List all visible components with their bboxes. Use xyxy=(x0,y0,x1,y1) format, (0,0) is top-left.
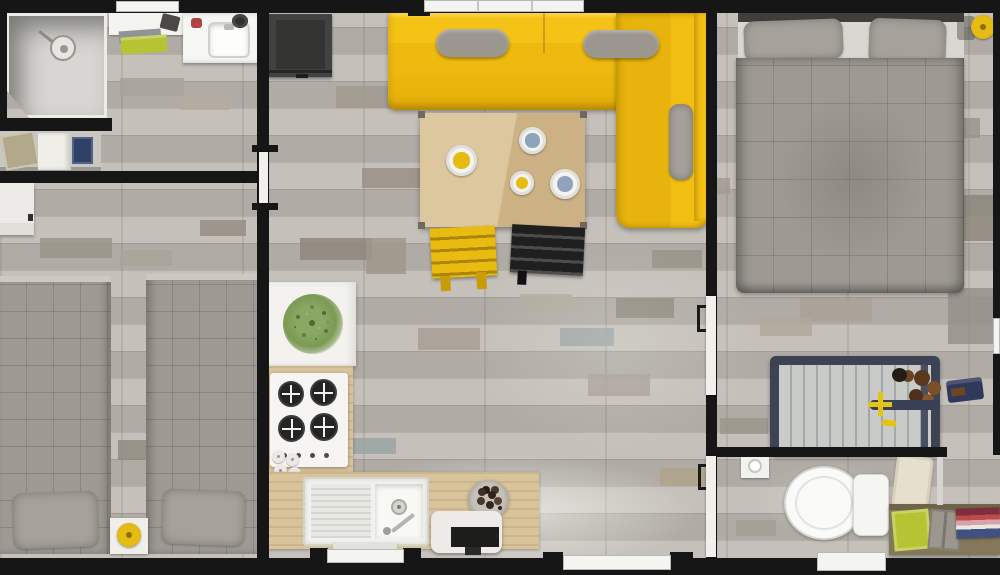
table-leg xyxy=(418,222,425,229)
yellow-mug xyxy=(510,171,534,195)
closet-divider xyxy=(937,457,943,505)
vanity-counter xyxy=(183,13,264,63)
white-towel xyxy=(38,133,71,170)
potted-plant xyxy=(283,294,343,354)
tall-cabinet-fridge xyxy=(268,14,332,77)
hob-knob xyxy=(310,453,315,458)
stacked-towels xyxy=(955,507,1000,539)
green-folded-towel xyxy=(891,508,931,551)
floor-plan xyxy=(0,0,1000,575)
bath-mat xyxy=(891,454,934,511)
shaker xyxy=(286,453,299,466)
khaki-towel xyxy=(0,130,40,170)
twin-bed-left-pillow xyxy=(12,491,99,550)
wardrobe-knob xyxy=(28,214,33,221)
door-jamb xyxy=(252,145,278,152)
chair-leg xyxy=(476,272,487,290)
coffee-machine-spout xyxy=(465,547,481,555)
sofa-cushion-left xyxy=(436,29,509,57)
floor-patch xyxy=(588,374,650,396)
twin-lamp xyxy=(117,523,141,547)
floor-patch xyxy=(350,438,396,454)
window-jamb xyxy=(670,552,693,570)
wall-left xyxy=(0,0,7,131)
floor-patch xyxy=(560,328,614,346)
floor-patch xyxy=(418,328,480,350)
red-soap-item xyxy=(191,18,202,28)
wall-right xyxy=(993,0,1000,455)
floor-patch xyxy=(720,418,768,434)
table-leg xyxy=(580,111,587,118)
toilet-bowl xyxy=(784,466,864,540)
shaker xyxy=(272,450,285,463)
fridge-seam xyxy=(268,70,332,73)
burner xyxy=(310,379,337,406)
double-bed xyxy=(738,13,964,293)
door-toilet-room xyxy=(706,456,716,557)
double-bed-pillow-left xyxy=(743,18,843,61)
chair-leg xyxy=(517,270,527,284)
berries xyxy=(478,488,486,496)
door-jamb xyxy=(252,203,278,210)
floor-patch xyxy=(652,250,702,268)
fridge-panel xyxy=(276,20,325,69)
floor-patch xyxy=(30,200,70,214)
dining-table xyxy=(420,113,585,227)
floor-patch xyxy=(948,288,996,344)
table-leg xyxy=(418,111,425,118)
blue-mug-2 xyxy=(550,169,580,199)
drain-center xyxy=(397,505,401,509)
floor-patch xyxy=(120,250,172,266)
chair-leg xyxy=(440,276,451,292)
shower-head-icon xyxy=(50,35,76,61)
navy-towel xyxy=(72,137,93,164)
wall-toilet-top xyxy=(706,447,947,457)
bedside-lamp xyxy=(971,15,995,39)
clothes-pile xyxy=(946,377,984,403)
toilet-tank xyxy=(853,474,889,536)
burner xyxy=(278,415,305,442)
wall-end-post xyxy=(148,171,162,183)
door-handle xyxy=(697,305,706,332)
sink-unit xyxy=(303,477,429,546)
sink-drain xyxy=(391,499,407,515)
floor-patch xyxy=(40,238,112,258)
window-jamb xyxy=(403,548,421,566)
floor-patch xyxy=(736,520,776,536)
towel-rack xyxy=(0,130,101,172)
window-kitchen-bottom xyxy=(327,549,404,563)
hob-knob xyxy=(324,453,329,458)
floor-patch xyxy=(616,298,674,318)
yellow-slat-chair xyxy=(430,225,498,278)
floor-patch xyxy=(180,96,230,110)
yellow-teapot xyxy=(446,145,477,176)
sofa-lumbar-pillow xyxy=(669,104,693,180)
bath-caddy xyxy=(892,362,938,402)
clothes-accent xyxy=(951,387,966,397)
drainboard xyxy=(311,484,371,538)
floor-patch xyxy=(760,318,812,336)
twin-lamp-center xyxy=(126,532,132,538)
door-left-bedroom xyxy=(259,152,268,203)
window-right-wall xyxy=(993,318,1000,354)
black-slat-chair xyxy=(510,224,585,276)
plant-leaves xyxy=(309,320,315,326)
window-living-bottom xyxy=(563,555,671,570)
coffee-machine-panel xyxy=(451,527,499,547)
shower-head-center xyxy=(60,45,68,53)
floor-patch xyxy=(300,238,372,260)
toilet-paper-holder xyxy=(741,454,769,478)
floor-patch xyxy=(200,220,246,236)
black-jar xyxy=(232,14,248,28)
comforter-shading xyxy=(778,93,928,263)
sofa-cushion-right xyxy=(583,30,659,58)
door-right-bedroom xyxy=(706,296,716,395)
caddy-dark-jar xyxy=(892,368,907,382)
lamp-center xyxy=(980,24,986,30)
door-bath-bottom xyxy=(817,552,886,571)
bag-strap xyxy=(941,512,947,548)
door-handle xyxy=(698,464,706,490)
handle-bar-h xyxy=(868,402,892,407)
paper-roll xyxy=(748,459,762,473)
window-living-top xyxy=(424,0,584,12)
burner xyxy=(310,413,338,441)
floor-patch xyxy=(366,238,406,274)
wall-bedroom-left-top xyxy=(0,171,265,183)
corner-shower xyxy=(6,13,107,118)
sofa-back-seam xyxy=(543,13,545,53)
window-jamb xyxy=(543,552,563,570)
window-jamb xyxy=(310,548,328,566)
wall-bath-divider xyxy=(0,118,112,131)
twin-bed-right-pillow xyxy=(161,489,246,547)
blue-mug-1 xyxy=(519,127,546,154)
burner xyxy=(278,381,304,407)
coffee-machine xyxy=(431,511,502,553)
fridge-handle xyxy=(296,74,308,78)
yellow-faucet-handle xyxy=(868,392,892,416)
window-bath-top xyxy=(116,1,179,12)
wall-vertical-left xyxy=(257,13,269,559)
white-wardrobe xyxy=(0,183,34,235)
floor-patch xyxy=(520,294,572,312)
sink-faucet-base xyxy=(383,527,391,535)
floor-patch xyxy=(120,78,184,96)
green-floor-towel xyxy=(120,34,167,54)
